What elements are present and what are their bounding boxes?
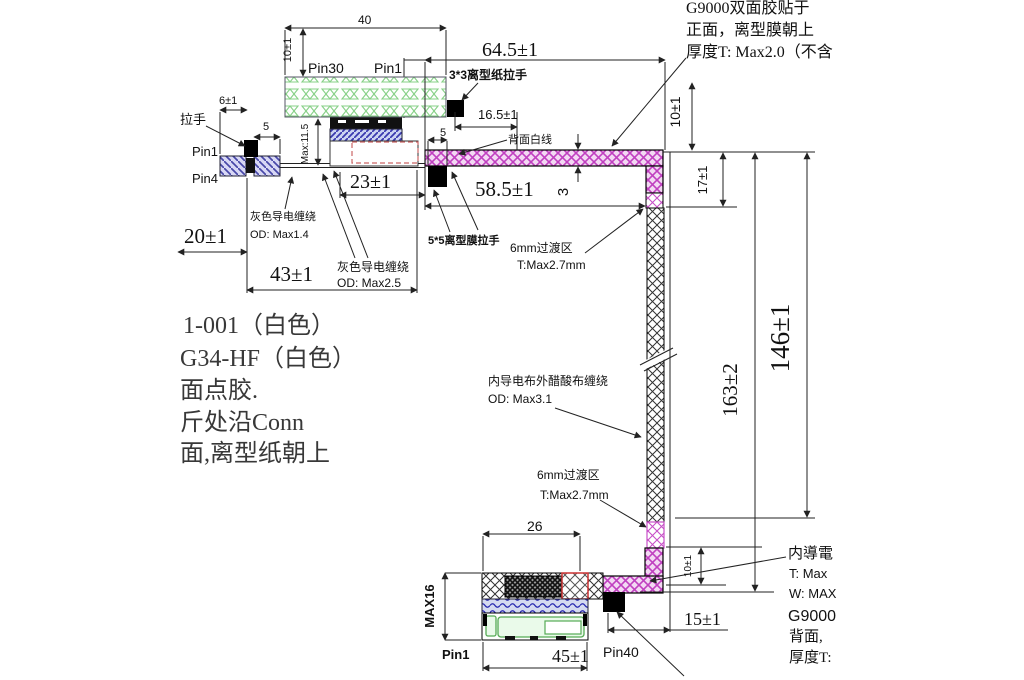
max115-label: Max:11.5: [300, 123, 311, 164]
tab33-callout: 3*3离型纸拉手: [449, 67, 527, 82]
engineering-drawing-canvas: 40 10±1 Pin30 Pin1 3*3离型纸拉手 64.5±1 G9000…: [0, 0, 1024, 680]
dim-10-right-label: 10±1: [667, 96, 683, 127]
note-bottomright-2: T: Max: [789, 566, 828, 581]
dim-23-label: 23±1: [350, 171, 391, 193]
note-left-3: 面点胶.: [180, 377, 258, 404]
note-topright-2: 正面，离型膜朝上: [686, 21, 814, 39]
dim-3-label: 3: [555, 188, 572, 196]
dim-165-label: 16.5±1: [478, 107, 518, 122]
acetate-wrap-line2: OD: Max3.1: [488, 392, 552, 406]
vertical-arm-strip: [603, 208, 677, 593]
pin30-label: Pin30: [308, 60, 344, 76]
gray-wrap2-line1: 灰色导电缠绕: [337, 259, 409, 274]
dim-26-label: 26: [527, 518, 543, 534]
release-film-tab-5x5: [428, 166, 447, 187]
note-left-2: G34-HF（白色）: [180, 345, 356, 372]
pin1-top-label: Pin1: [374, 60, 402, 76]
transition2-line2: T:Max2.7mm: [540, 488, 609, 502]
dim-10-bottom-label: 10±1: [683, 554, 694, 577]
gray-wrap2-line2: OD: Max2.5: [337, 276, 401, 290]
dim-10-top-label: 10±1: [282, 38, 294, 62]
tab55-callout: 5*5离型膜拉手: [428, 233, 500, 247]
pull-tab-callout: 拉手: [180, 112, 206, 127]
note-bottomright-3: W: MAX: [789, 586, 837, 601]
acetate-wrap-line1: 内导电布外醋酸布缠绕: [488, 373, 608, 388]
pin40-tab: [603, 592, 625, 612]
top-arm-strip: [425, 150, 663, 208]
top-connector-pin30: [285, 77, 464, 117]
dim-45-label: 45±1: [552, 646, 589, 666]
dim-645-label: 64.5±1: [482, 39, 538, 61]
dim-5-top-label: 5: [440, 127, 446, 139]
labels: 40 10±1 Pin30 Pin1 3*3离型纸拉手 64.5±1 G9000…: [180, 0, 837, 666]
dim-163-label: 163±2: [718, 363, 742, 417]
dim-146-label: 146±1: [765, 304, 795, 373]
note-topright-1: G9000双面胶贴于: [686, 0, 810, 17]
note-bottomright-4: G9000: [788, 608, 836, 625]
max16-label: MAX16: [422, 584, 437, 627]
dim-585-label: 58.5±1: [475, 177, 534, 201]
gray-wrap1-line1: 灰色导电缠绕: [250, 209, 316, 223]
pin1-bottom-label: Pin1: [442, 647, 469, 662]
drawing-svg: 40 10±1 Pin30 Pin1 3*3离型纸拉手 64.5±1 G9000…: [0, 0, 1024, 680]
transition2-line1: 6mm过渡区: [537, 467, 600, 482]
dim-40-label: 40: [358, 13, 372, 27]
note-left-1: 1-001（白色）: [183, 312, 335, 339]
note-bottomright-6: 厚度T:: [789, 649, 832, 666]
dim-5-left-label: 5: [263, 121, 269, 133]
dim-15-label: 15±1: [684, 609, 721, 629]
note-topright-3: 厚度T: Max2.0（不含: [686, 43, 833, 61]
dim-43-label: 43±1: [270, 262, 313, 286]
note-left-4: 斤处沿Conn: [180, 409, 304, 436]
note-left-5: 面,离型纸朝上: [180, 440, 330, 467]
note-bottomright-5: 背面,: [789, 628, 823, 645]
gray-wrap1-line2: OD: Max1.4: [250, 229, 309, 241]
dim-6-label: 6±1: [219, 95, 237, 107]
dim-17-label: 17±1: [695, 166, 710, 195]
pin40-label: Pin40: [603, 644, 639, 660]
pin1-left-label: Pin1: [192, 144, 218, 159]
transition1-line2: T:Max2.7mm: [517, 258, 586, 272]
dim-20-label: 20±1: [184, 224, 227, 248]
transition1-line1: 6mm过渡区: [510, 240, 573, 255]
note-bottomright-1: 内導電: [788, 545, 833, 562]
back-white-line-callout: 背面白线: [508, 132, 552, 146]
pin4-left-label: Pin4: [192, 171, 218, 186]
